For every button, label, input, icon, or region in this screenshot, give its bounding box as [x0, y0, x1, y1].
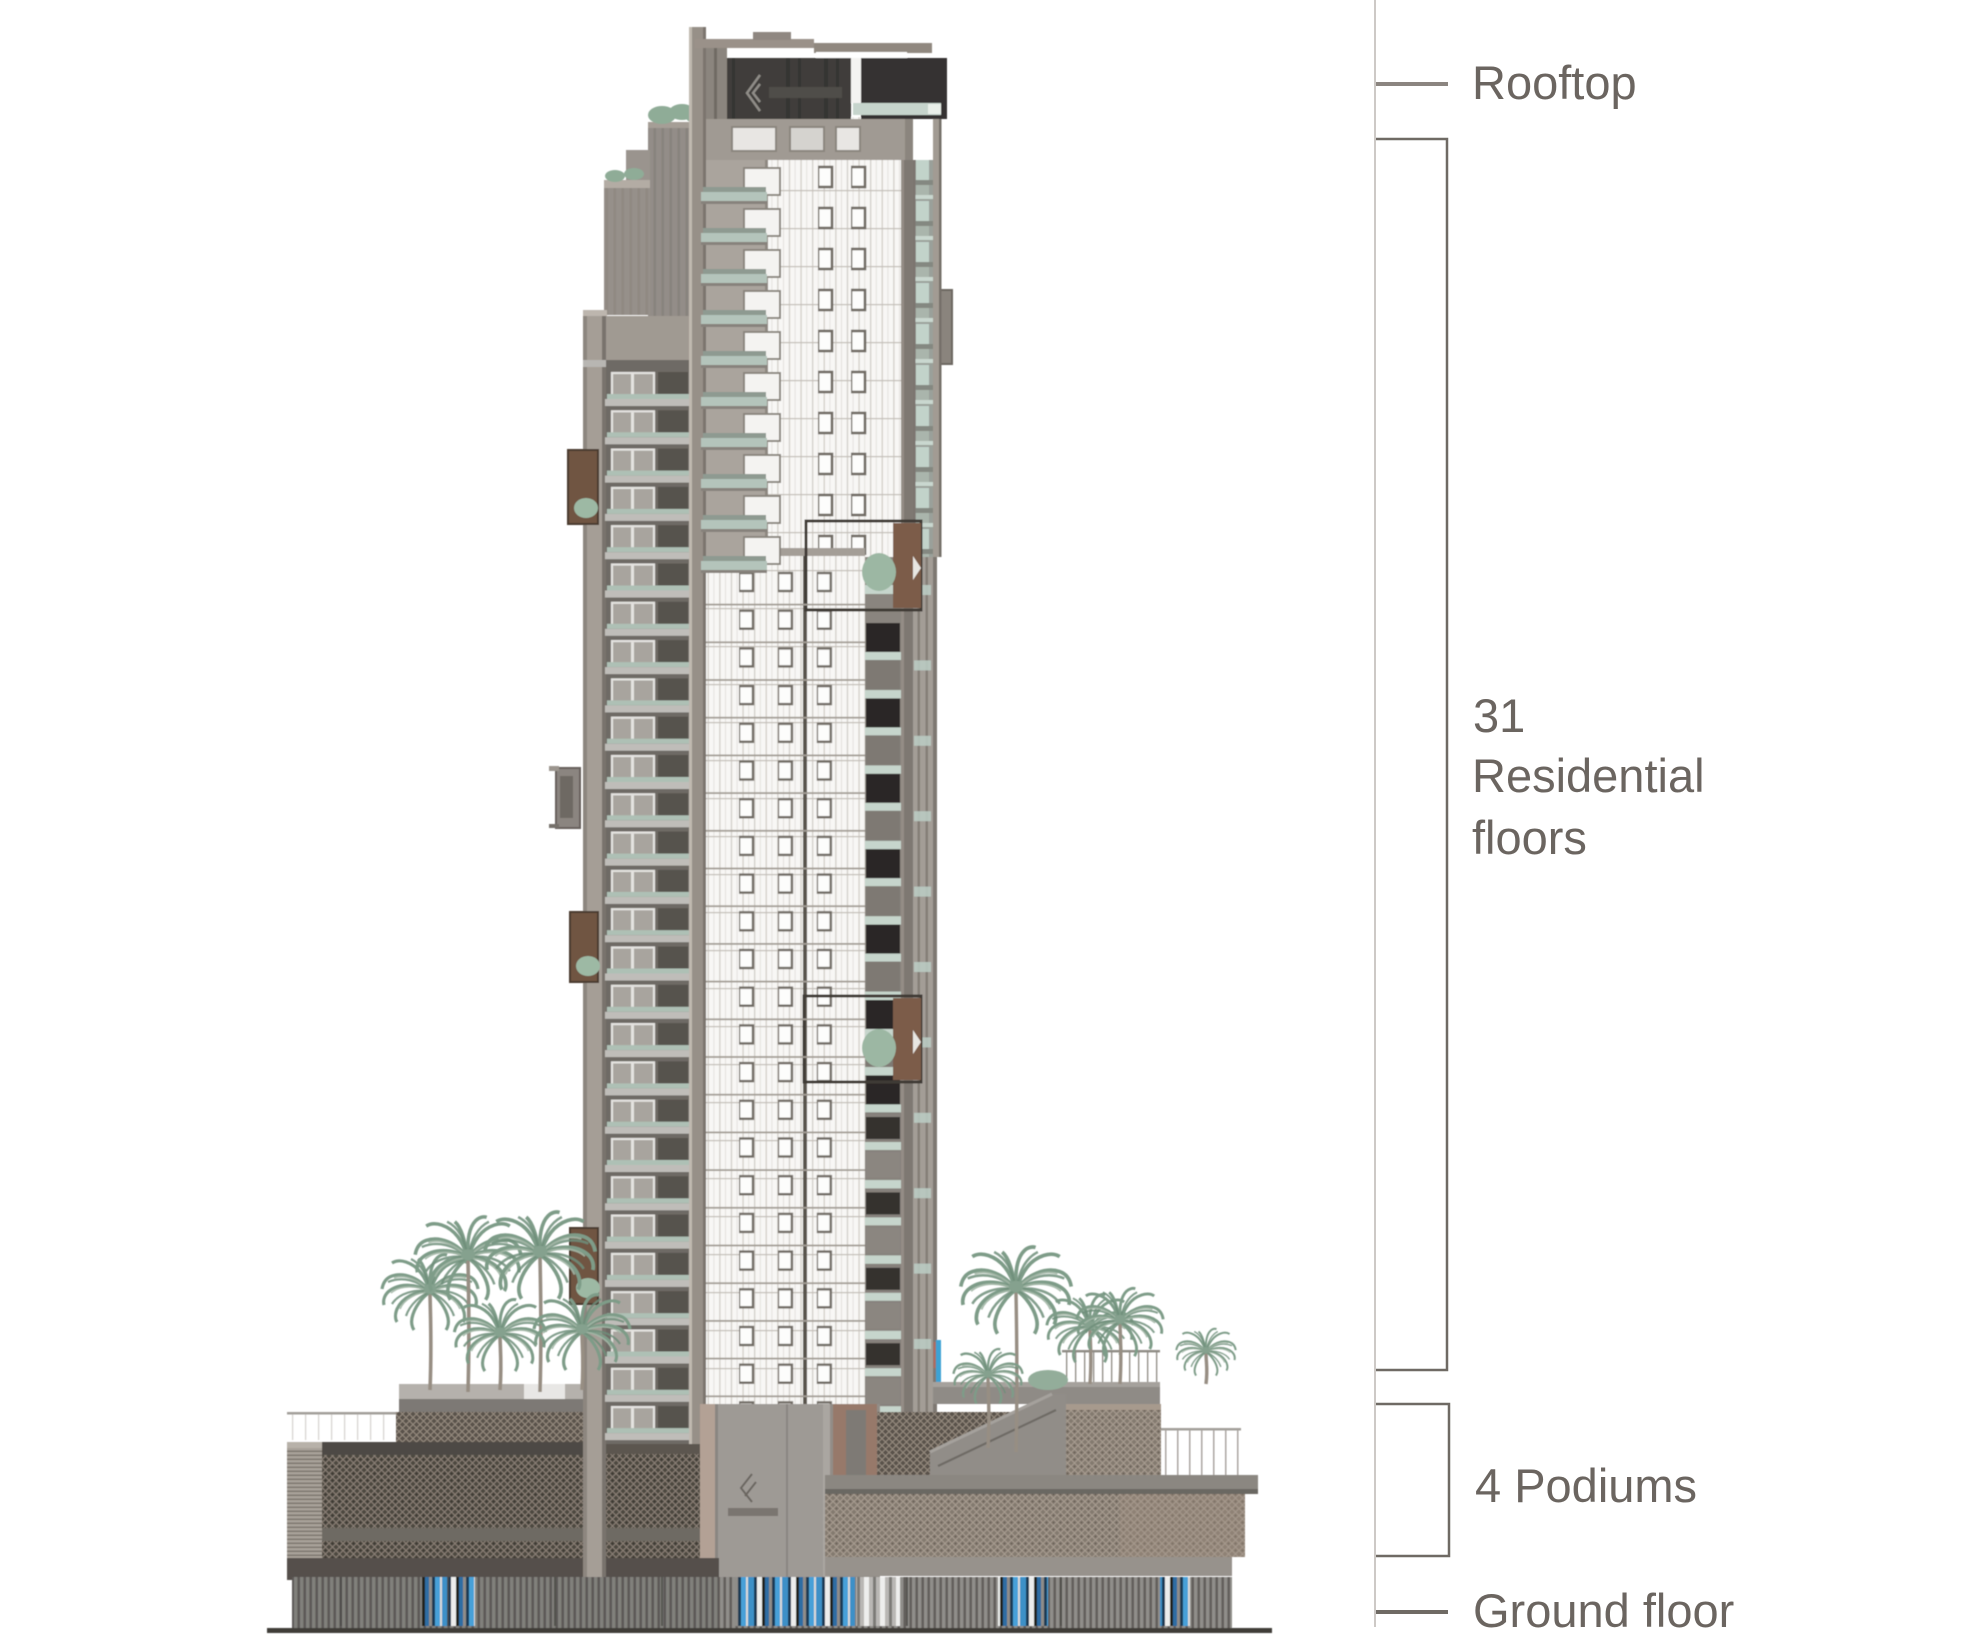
svg-text:Rooftop: Rooftop [1472, 56, 1637, 109]
svg-text:4 Podiums: 4 Podiums [1475, 1459, 1697, 1512]
svg-text:31: 31 [1473, 689, 1525, 742]
svg-text:floors: floors [1472, 811, 1587, 864]
svg-text:Residential: Residential [1472, 749, 1705, 802]
svg-text:Ground floor: Ground floor [1473, 1584, 1734, 1637]
